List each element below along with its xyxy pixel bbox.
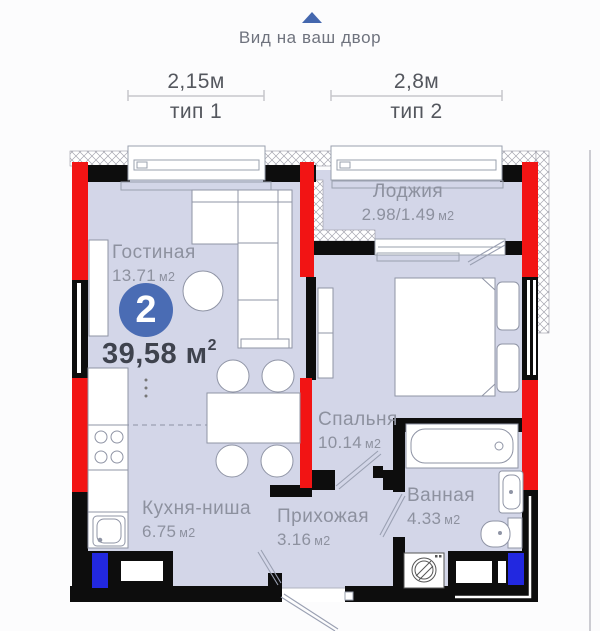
room-unit-bathroom: м2 bbox=[444, 513, 460, 527]
room-name-hallway: Прихожая bbox=[277, 507, 369, 526]
room-area-bathroom: 4.33 bbox=[407, 509, 441, 528]
tv-stand-icon bbox=[89, 240, 108, 336]
room-label-kitchen: Кухня-ниша 6.75м2 bbox=[142, 499, 251, 540]
room-name-bedroom: Спальня bbox=[318, 410, 398, 429]
dimension-size-1: 2,15м bbox=[128, 70, 264, 94]
direction-arrow-icon bbox=[302, 12, 322, 23]
room-label-living: Гостиная 13.71м2 bbox=[112, 243, 196, 284]
room-name-loggia: Лоджия bbox=[362, 182, 455, 201]
room-name-living: Гостиная bbox=[112, 243, 196, 262]
room-area-loggia: 2.98/1.49 bbox=[362, 205, 436, 224]
view-direction-label: Вид на ваш двор bbox=[110, 28, 510, 48]
room-name-bathroom: Ванная bbox=[407, 486, 475, 505]
room-label-hallway: Прихожая 3.16м2 bbox=[277, 507, 369, 548]
room-label-loggia: Лоджия 2.98/1.49м2 bbox=[362, 182, 455, 223]
room-label-bedroom: Спальня 10.14м2 bbox=[318, 410, 398, 451]
total-area-label: 39,58 м2 bbox=[102, 338, 217, 371]
wardrobe-icon bbox=[318, 288, 333, 378]
room-area-hallway: 3.16 bbox=[277, 530, 311, 549]
toilet-icon bbox=[481, 518, 522, 548]
room-label-bathroom: Ванная 4.33м2 bbox=[407, 486, 475, 527]
room-unit-bedroom: м2 bbox=[365, 437, 381, 451]
room-unit-kitchen: м2 bbox=[179, 526, 195, 540]
bathtub-icon bbox=[406, 424, 518, 468]
total-area-sup: 2 bbox=[208, 337, 217, 354]
floorplan-card: Вид на ваш двор 2,15м тип 1 2,8м тип 2 2… bbox=[0, 0, 600, 631]
rooms-count-value: 2 bbox=[135, 289, 156, 332]
room-unit-living: м2 bbox=[159, 270, 175, 284]
room-name-kitchen: Кухня-ниша bbox=[142, 499, 251, 518]
dimension-type-2: тип 2 bbox=[331, 100, 502, 124]
room-unit-hallway: м2 bbox=[314, 534, 330, 548]
dimension-type-1: тип 1 bbox=[128, 100, 264, 124]
room-area-kitchen: 6.75 bbox=[142, 522, 176, 541]
room-area-bedroom: 10.14 bbox=[318, 433, 362, 452]
room-area-living: 13.71 bbox=[112, 266, 156, 285]
total-area-value: 39,58 м bbox=[102, 338, 208, 370]
rooms-count-badge: 2 bbox=[119, 283, 173, 337]
bathroom-sink-icon bbox=[499, 471, 523, 513]
washing-machine-icon bbox=[404, 553, 444, 588]
dimension-size-2: 2,8м bbox=[331, 70, 502, 94]
room-unit-loggia: м2 bbox=[438, 209, 454, 223]
